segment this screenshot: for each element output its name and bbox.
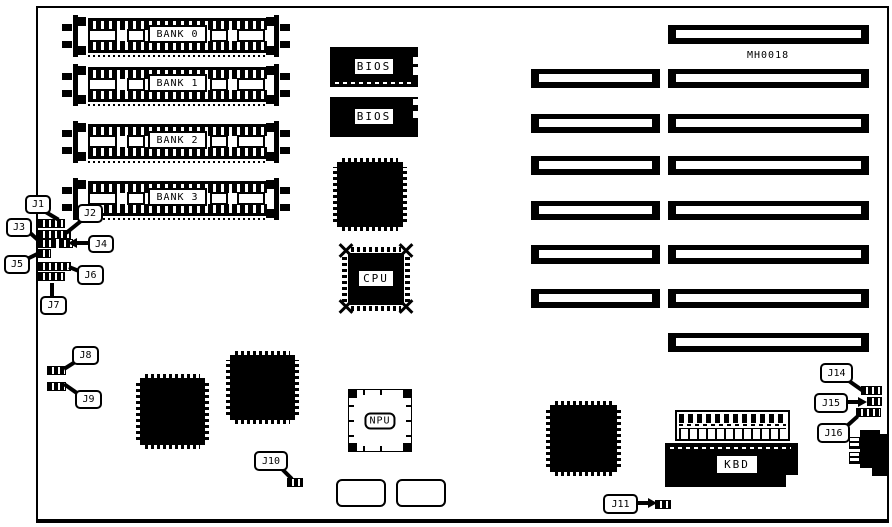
simm-slot-window: [210, 29, 228, 42]
simm-slot-window: [237, 135, 265, 148]
jumper-callout-j16: J16: [817, 423, 850, 443]
jumper-callout-j8: J8: [72, 346, 99, 365]
slot-opening: [676, 250, 861, 258]
simm-latch-right: [265, 178, 290, 220]
chip-pins: [145, 444, 200, 449]
chip-pins: [235, 419, 290, 424]
simm-bank-0: BANK 0: [62, 15, 290, 57]
slot-opening: [676, 119, 861, 127]
chip-pins: [405, 256, 410, 302]
chip-pins: [342, 226, 398, 231]
expansion-slot-short: [531, 69, 660, 88]
slot-opening: [539, 74, 652, 82]
jumper-pins-j14: [861, 386, 882, 395]
callout-tail-j15: [847, 400, 862, 404]
jumper-pins-j11: [655, 500, 671, 509]
chip-pins: [145, 374, 200, 379]
bank-label: BANK 3: [148, 188, 207, 206]
expansion-slot-long: [668, 69, 869, 88]
chip-pins: [333, 167, 338, 222]
slot-opening: [676, 338, 861, 346]
expansion-slot-long: [668, 201, 869, 220]
chip-notch: [413, 57, 418, 64]
simm-latch-right: [265, 64, 290, 106]
slot-opening: [539, 161, 652, 169]
connector-contact: [849, 452, 860, 464]
connector-holes: [679, 428, 786, 440]
jumper-callout-j7: J7: [40, 296, 67, 315]
expansion-slot-long: [668, 25, 869, 44]
jumper-pins-j1: [38, 219, 65, 228]
jumper-callout-j10: J10: [254, 451, 288, 471]
jumper-pins-j6: [38, 262, 71, 271]
jumper-callout-j3: J3: [6, 218, 32, 237]
simm-dotted-row: [88, 218, 267, 220]
jumper-callout-j15: J15: [814, 393, 848, 413]
simm-slot-window: [237, 192, 265, 205]
expansion-slot-long: [668, 333, 869, 352]
slot-opening: [676, 294, 861, 302]
corner-mark: [339, 244, 353, 258]
jumper-callout-j6: J6: [77, 265, 104, 285]
chip-notch: [786, 475, 798, 487]
npu-label: NPU: [364, 412, 395, 429]
simm-bank-1: BANK 1: [62, 64, 290, 106]
slot-opening: [676, 161, 861, 169]
corner-mark: [399, 244, 413, 258]
expansion-slot-short: [531, 156, 660, 175]
bios-chip-label: BIOS: [355, 109, 393, 124]
chip-pins: [342, 256, 347, 302]
simm-bank-2: BANK 2: [62, 121, 290, 163]
bios-chip-1: BIOS: [330, 47, 418, 87]
bank-label: BANK 1: [148, 74, 207, 92]
corner-mark: [339, 300, 353, 314]
kbd-dashed-line: [670, 447, 791, 449]
pin-header-connector: [675, 410, 790, 441]
simm-slot-window: [88, 135, 117, 148]
chip-body: [230, 355, 295, 420]
chip-notch: [413, 111, 418, 118]
expansion-slot-long: [668, 156, 869, 175]
chip-pins: [351, 306, 401, 311]
simm-latch-left: [62, 15, 87, 57]
jumper-pins-j7: [38, 272, 65, 281]
jumper-pins-j16: [856, 408, 881, 417]
expansion-slot-short: [531, 114, 660, 133]
bank-label: BANK 2: [148, 131, 207, 149]
simm-slot-window: [127, 135, 145, 148]
qfp-chip: [226, 351, 299, 424]
slot-opening: [539, 119, 652, 127]
chip-pins: [555, 471, 612, 476]
qfp-chip: [136, 374, 209, 449]
jumper-callout-j11: J11: [603, 494, 638, 514]
kbd-label: KBD: [717, 456, 757, 473]
socket-ticks: [363, 390, 397, 395]
motherboard-diagram: BANK 0 BANK 1 BANK 2 BANK 3: [0, 0, 892, 527]
jumper-pins-j15: [867, 397, 882, 406]
slot-opening: [676, 206, 861, 214]
socket-ticks: [406, 404, 411, 437]
expansion-slot-short: [531, 201, 660, 220]
socket-corner: [349, 390, 357, 398]
connector-divider: [679, 424, 786, 426]
simm-latch-left: [62, 64, 87, 106]
connector-pins: [679, 414, 786, 423]
chip-body: [140, 378, 205, 445]
chip-pins: [294, 360, 299, 415]
simm-latch-right: [265, 15, 290, 57]
jumper-callout-j9: J9: [75, 390, 102, 409]
simm-slot-window: [127, 192, 145, 205]
jumper-callout-j14: J14: [820, 363, 853, 383]
jumper-pins-j5: [38, 249, 51, 258]
oscillator-socket: [336, 479, 386, 507]
chip-pins: [235, 351, 290, 356]
simm-slot-window: [210, 135, 228, 148]
socket-corner: [403, 443, 411, 451]
chip-body: [337, 162, 403, 227]
simm-latch-left: [62, 121, 87, 163]
expansion-slot-long: [668, 114, 869, 133]
simm-slot-window: [127, 78, 145, 91]
simm-slot-window: [237, 29, 265, 42]
npu-socket: NPU: [348, 389, 412, 452]
simm-slot-window: [88, 29, 117, 42]
bios-chip-2: BIOS: [330, 97, 418, 137]
corner-mark: [399, 300, 413, 314]
board-model-number: MH0018: [747, 50, 789, 61]
socket-corner: [403, 390, 411, 398]
callout-tail-j11: [637, 501, 650, 505]
slot-opening: [676, 74, 861, 82]
simm-dotted-row: [88, 161, 267, 163]
chip-pins: [546, 410, 551, 467]
chip-notch: [413, 99, 418, 105]
socket-corner: [349, 443, 357, 451]
slot-opening: [539, 206, 652, 214]
simm-slot-window: [210, 192, 228, 205]
chip-pins: [402, 167, 407, 222]
qfp-chip: [333, 158, 407, 231]
expansion-slot-short: [531, 245, 660, 264]
simm-latch-right: [265, 121, 290, 163]
slot-opening: [539, 250, 652, 258]
chip-pins: [616, 410, 621, 467]
slot-opening: [539, 294, 652, 302]
slot-opening: [676, 30, 861, 38]
jumper-callout-j2: J2: [77, 204, 103, 223]
qfp-chip: [546, 401, 621, 476]
simm-slot-window: [88, 78, 117, 91]
simm-slot-window: [237, 78, 265, 91]
simm-slot-window: [127, 29, 145, 42]
socket-ticks: [349, 404, 354, 437]
simm-dotted-row: [88, 104, 267, 106]
expansion-slot-short: [531, 289, 660, 308]
jumper-callout-j4: J4: [88, 235, 114, 253]
jumper-callout-j1: J1: [25, 195, 51, 214]
simm-slot-window: [210, 78, 228, 91]
expansion-slot-long: [668, 245, 869, 264]
bios-chip-label: BIOS: [355, 59, 393, 74]
chip-pins: [351, 247, 401, 252]
socket-ticks: [363, 446, 397, 451]
connector-contact: [849, 437, 860, 449]
din-keyboard-connector: [872, 434, 889, 476]
chip-pins: [555, 401, 612, 406]
jumper-callout-j5: J5: [4, 255, 30, 274]
chip-pins: [226, 360, 231, 415]
chip-pins: [204, 383, 209, 440]
oscillator-socket: [396, 479, 446, 507]
cpu-label: CPU: [359, 271, 393, 286]
chip-pins: [342, 158, 398, 163]
bios-dashed-line: [335, 82, 411, 84]
kbd-chip: KBD: [665, 443, 798, 487]
simm-dotted-row: [88, 55, 267, 57]
expansion-slot-long: [668, 289, 869, 308]
cpu-chip: CPU: [342, 247, 410, 311]
bank-label: BANK 0: [148, 25, 207, 43]
callout-tail-j4: [76, 241, 88, 245]
chip-pins: [136, 383, 141, 440]
chip-notch: [413, 67, 418, 75]
chip-body: [550, 405, 617, 472]
